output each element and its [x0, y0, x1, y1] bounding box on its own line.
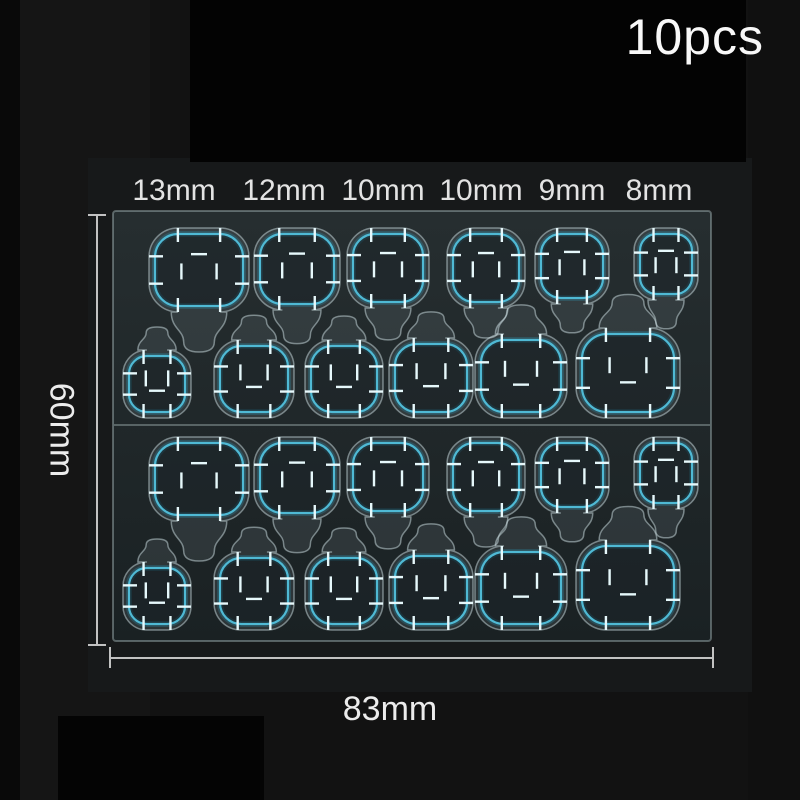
width-label: 83mm: [343, 690, 437, 729]
quantity-label: 10pcs: [626, 10, 764, 65]
width-dimension-cap-left: [109, 647, 111, 668]
size-label-3: 10mm: [341, 174, 424, 208]
product-photo: 10pcs 13mm 12mm 10mm 10mm 9mm 8mm 60mm 8…: [0, 0, 800, 800]
background-bottom-black: [58, 716, 264, 800]
width-dimension-cap-right: [712, 647, 714, 668]
height-label: 60mm: [42, 383, 81, 477]
background-left-edge: [0, 0, 20, 800]
size-label-2: 12mm: [242, 174, 325, 208]
background-right-band: [748, 0, 800, 800]
size-label-4: 10mm: [439, 174, 522, 208]
height-dimension-cap-top: [88, 214, 106, 216]
width-dimension-line: [110, 657, 714, 659]
height-dimension-cap-bottom: [88, 644, 106, 646]
adhesive-tabs-sheet: [112, 210, 712, 642]
size-label-1: 13mm: [132, 174, 215, 208]
size-label-5: 9mm: [539, 174, 606, 208]
size-label-6: 8mm: [626, 174, 693, 208]
height-dimension-line: [96, 215, 98, 645]
